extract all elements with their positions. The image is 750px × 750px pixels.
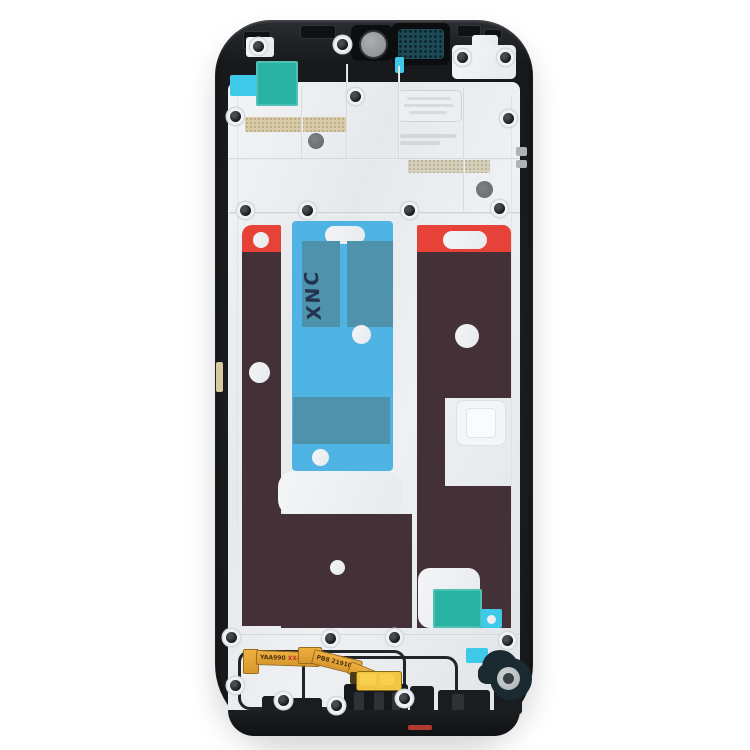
xnc-text: XNC bbox=[300, 269, 326, 320]
top-molding-slot bbox=[300, 25, 336, 39]
teal-sticker bbox=[256, 61, 298, 106]
embossed-date-code bbox=[400, 134, 456, 138]
screw bbox=[253, 41, 264, 52]
adhesive-hole bbox=[330, 560, 345, 575]
sticker-hole bbox=[487, 615, 496, 624]
film-panel bbox=[293, 397, 390, 444]
red-seal-mark bbox=[408, 725, 432, 730]
screw bbox=[457, 52, 468, 63]
screw bbox=[494, 203, 505, 214]
embossed-window-inner bbox=[466, 408, 496, 438]
side-slot bbox=[516, 147, 527, 156]
motor-ring-center bbox=[503, 673, 514, 684]
screw bbox=[337, 39, 348, 50]
screw bbox=[302, 205, 313, 216]
film-panel bbox=[347, 241, 393, 327]
teal-sticker-bottom bbox=[433, 589, 482, 628]
plate-seam bbox=[463, 88, 465, 212]
antenna-contact-strip bbox=[408, 159, 490, 173]
plate-window bbox=[278, 471, 403, 516]
plate-hole bbox=[308, 133, 324, 149]
plate-seam bbox=[229, 634, 520, 636]
screw bbox=[502, 635, 513, 646]
screw bbox=[500, 52, 511, 63]
adhesive-hole bbox=[249, 362, 270, 383]
front-camera-hole bbox=[359, 30, 388, 59]
screw bbox=[331, 700, 342, 711]
embossed-date-code bbox=[400, 141, 440, 145]
plate-hole bbox=[476, 181, 493, 198]
adhesive-hole bbox=[253, 232, 269, 248]
screw bbox=[503, 113, 514, 124]
adhesive-hole bbox=[455, 324, 479, 348]
screw bbox=[399, 693, 410, 704]
plate-seam bbox=[398, 66, 400, 160]
adhesive-hole bbox=[443, 231, 487, 249]
film-cutout bbox=[312, 449, 329, 466]
bottom-frame-strip bbox=[228, 710, 520, 736]
graphite-sheet-center bbox=[281, 514, 412, 628]
screw bbox=[278, 695, 289, 706]
graphite-sheet-left bbox=[242, 252, 281, 626]
embossed-label-stamp bbox=[398, 90, 462, 122]
earpiece-speaker-mesh bbox=[398, 29, 444, 59]
screw bbox=[230, 111, 241, 122]
screw bbox=[325, 633, 336, 644]
plate-seam bbox=[301, 86, 303, 160]
screw bbox=[240, 205, 251, 216]
screw bbox=[226, 632, 237, 643]
film-cutout bbox=[352, 325, 371, 344]
plate-seam bbox=[346, 64, 348, 160]
handwritten-marking: XNC bbox=[296, 258, 330, 332]
side-slot bbox=[516, 160, 527, 168]
flex-code: YAA990 bbox=[260, 654, 286, 662]
screw bbox=[404, 205, 415, 216]
product-photo: XNC YAA990 XX-G PB8 219102 bbox=[0, 0, 750, 750]
antenna-contact-strip bbox=[245, 117, 347, 132]
screw bbox=[389, 632, 400, 643]
screw bbox=[230, 680, 241, 691]
connector-pad bbox=[360, 674, 376, 685]
plate-seam bbox=[229, 158, 520, 160]
side-contact-pad bbox=[216, 362, 223, 392]
plate-seam bbox=[237, 96, 239, 526]
cyan-pull-tab bbox=[230, 75, 258, 96]
connector-pad bbox=[380, 674, 394, 685]
screw bbox=[350, 91, 361, 102]
plate-seam bbox=[229, 212, 520, 215]
